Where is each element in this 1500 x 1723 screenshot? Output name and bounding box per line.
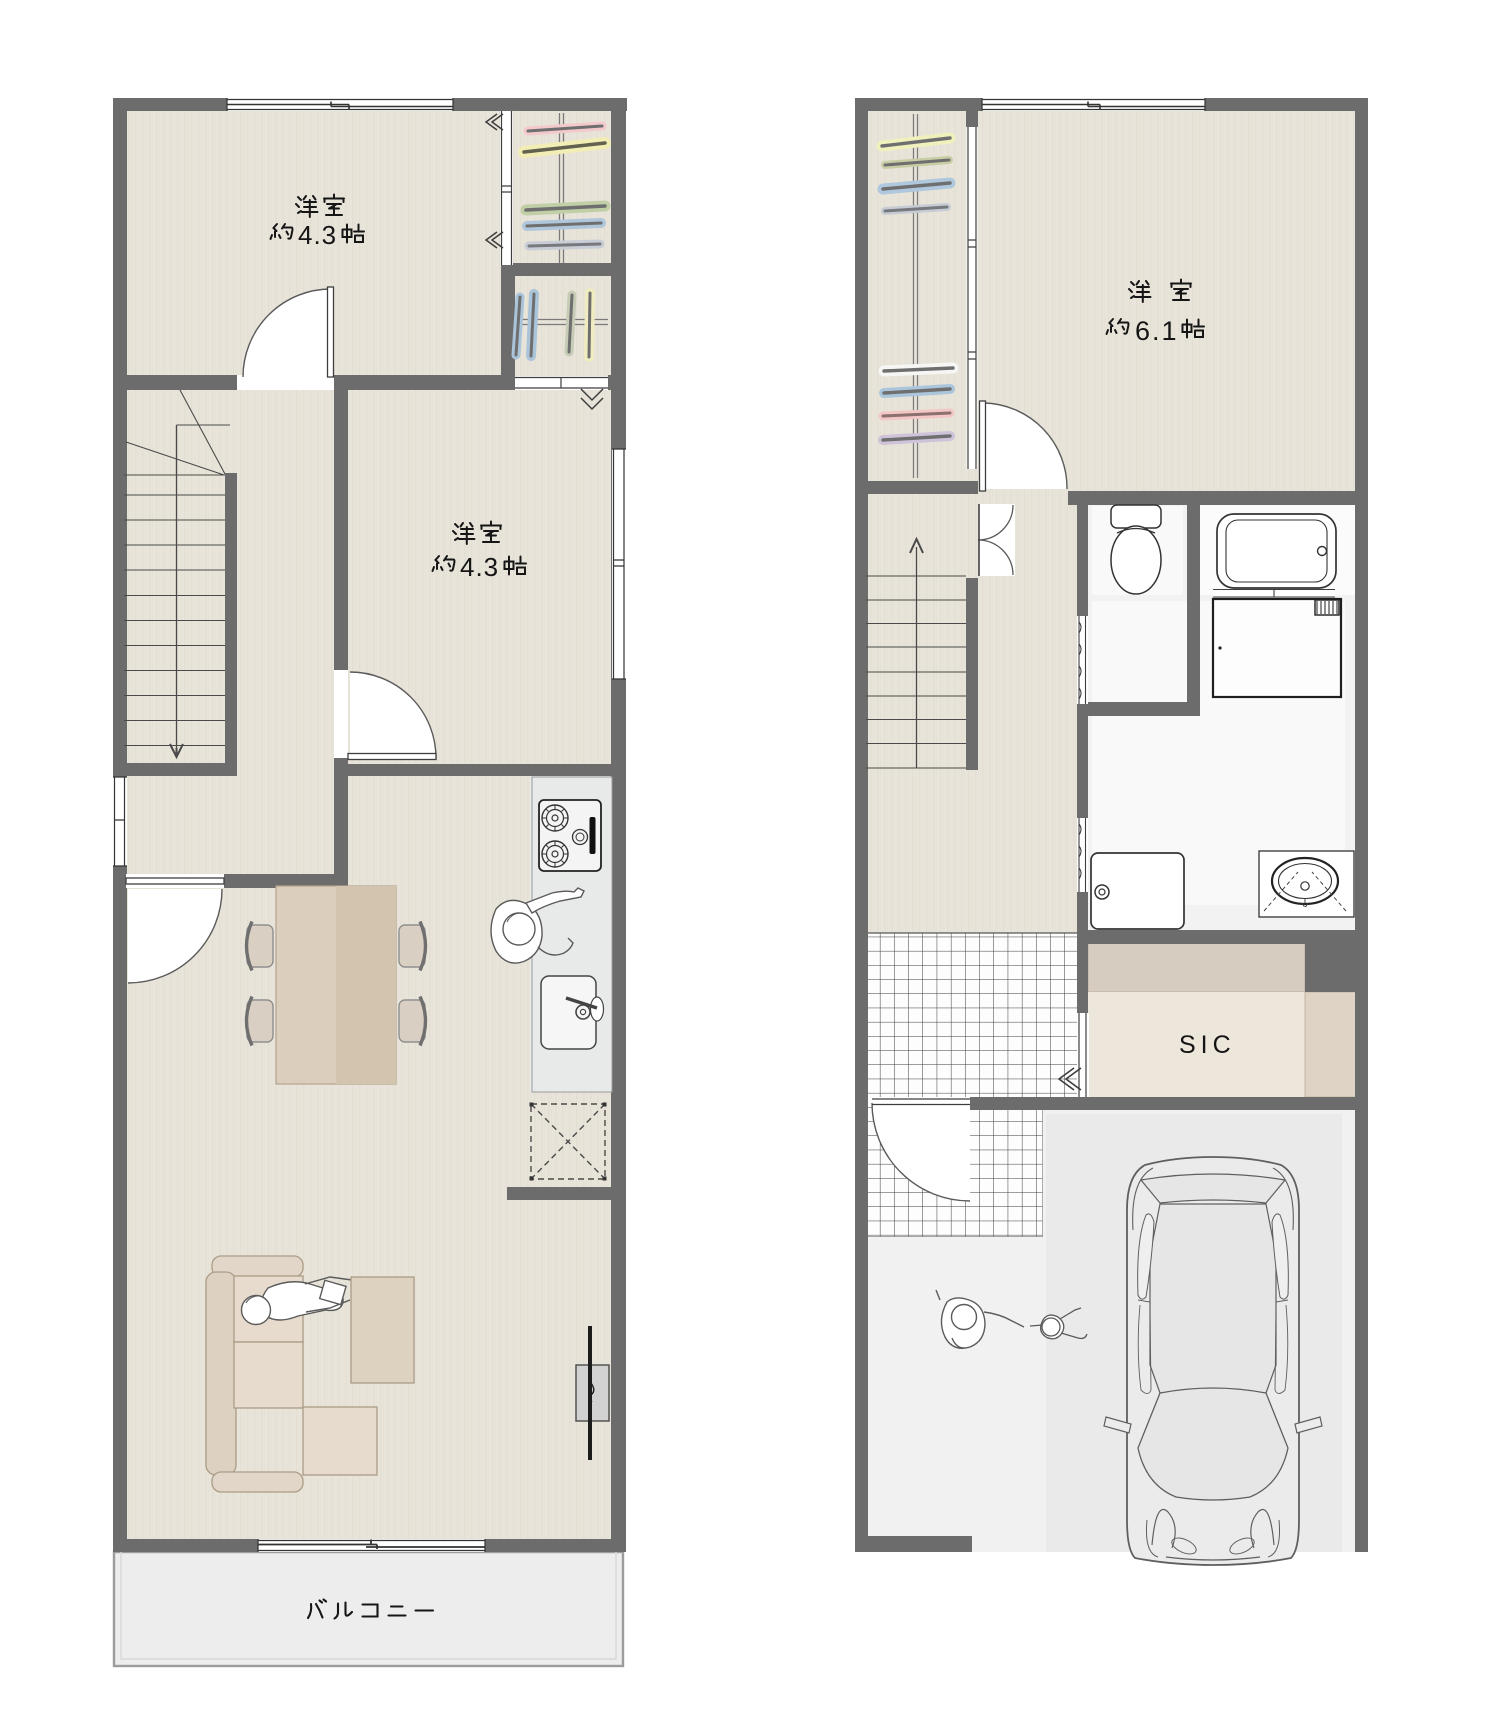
svg-text:6.1: 6.1 (1135, 316, 1179, 346)
svg-text:4.3: 4.3 (460, 552, 499, 582)
svg-text:4.3: 4.3 (298, 220, 337, 250)
svg-text:SIC: SIC (1179, 1031, 1236, 1059)
